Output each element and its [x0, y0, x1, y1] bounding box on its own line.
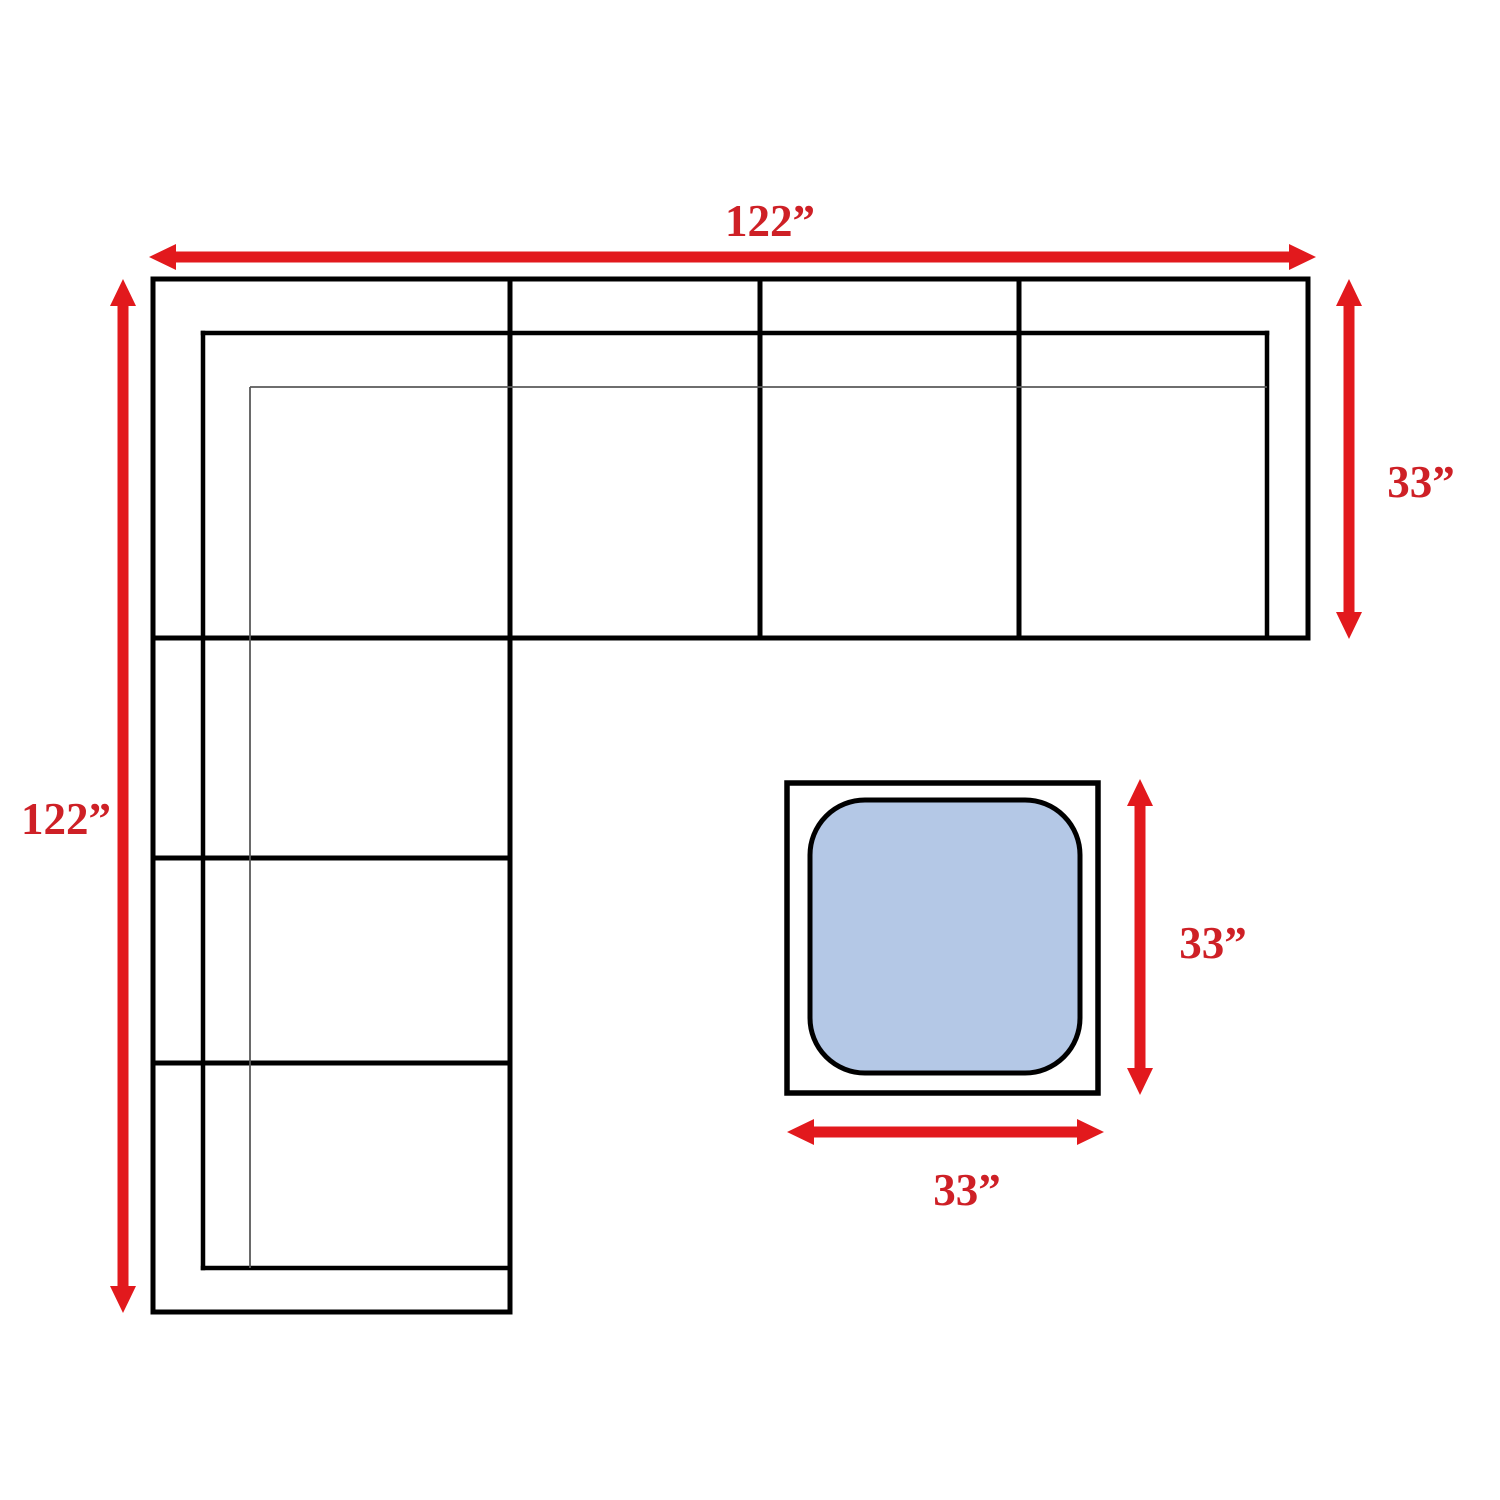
ottoman-width-label: 33”	[933, 1165, 1001, 1215]
ottoman	[787, 783, 1098, 1093]
ottoman-depth-arrow	[1127, 779, 1153, 1095]
dimension-arrows	[110, 244, 1362, 1313]
sofa-length-label: 122”	[21, 794, 111, 844]
sofa-dimension-diagram: 122” 122” 33” 33” 33”	[0, 0, 1500, 1500]
sofa-length-arrow	[110, 279, 136, 1313]
ottoman-cushion	[810, 800, 1080, 1073]
sofa-width-arrow	[149, 244, 1316, 270]
ottoman-depth-label: 33”	[1179, 918, 1247, 968]
sofa-depth-label: 33”	[1387, 457, 1455, 507]
sofa-depth-arrow	[1336, 279, 1362, 639]
sofa-width-label: 122”	[725, 196, 815, 246]
ottoman-width-arrow	[787, 1119, 1104, 1145]
